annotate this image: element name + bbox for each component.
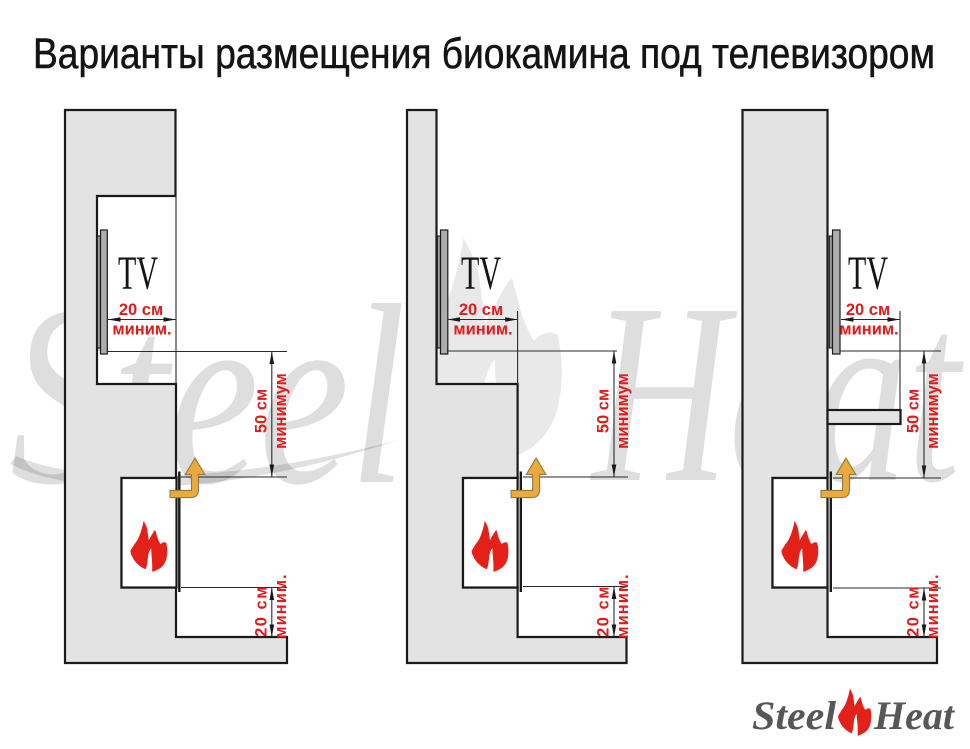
svg-text:20 см: 20 см bbox=[846, 301, 890, 319]
svg-text:20 см: 20 см bbox=[119, 301, 163, 319]
svg-text:минимум: минимум bbox=[924, 373, 942, 449]
svg-text:TV: TV bbox=[461, 248, 501, 300]
svg-text:миним.: миним. bbox=[924, 573, 942, 638]
svg-text:Heat: Heat bbox=[873, 693, 956, 738]
svg-text:миним.: миним. bbox=[272, 573, 290, 638]
svg-text:Варианты размещения биокамина: Варианты размещения биокамина под телеви… bbox=[33, 31, 935, 78]
svg-text:Steel: Steel bbox=[752, 693, 837, 738]
svg-text:миним.: миним. bbox=[112, 321, 171, 339]
svg-text:минимум: минимум bbox=[614, 373, 632, 449]
svg-text:50 см: 50 см bbox=[253, 389, 271, 433]
svg-text:20 см: 20 см bbox=[595, 585, 613, 637]
svg-text:20 см: 20 см bbox=[905, 585, 923, 637]
svg-text:миним.: миним. bbox=[453, 321, 512, 339]
svg-text:TV: TV bbox=[118, 248, 158, 300]
svg-text:TV: TV bbox=[848, 248, 888, 300]
svg-text:миним.: миним. bbox=[614, 573, 632, 638]
svg-text:20 см: 20 см bbox=[253, 585, 271, 637]
svg-text:50 см: 50 см bbox=[595, 389, 613, 433]
svg-text:20 см: 20 см bbox=[459, 301, 503, 319]
svg-text:50 см: 50 см bbox=[905, 389, 923, 433]
svg-text:минимум: минимум bbox=[272, 373, 290, 449]
svg-text:миним.: миним. bbox=[839, 321, 898, 339]
